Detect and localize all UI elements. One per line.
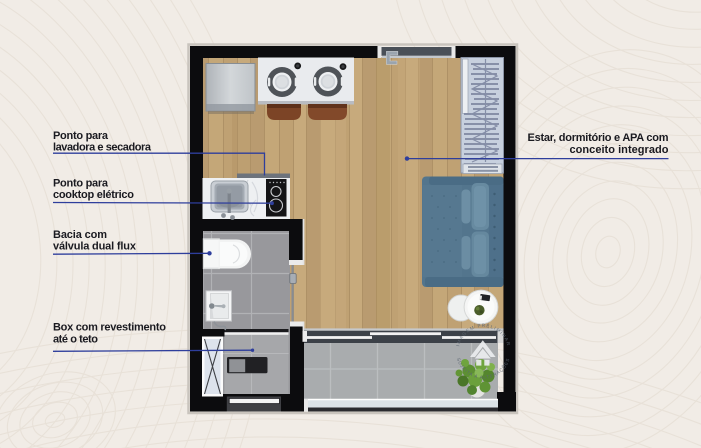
svg-text:Estar, dormitório e APA com: Estar, dormitório e APA com xyxy=(528,132,669,144)
svg-text:lavadora e secadora: lavadora e secadora xyxy=(53,141,152,153)
svg-text:Bacia com: Bacia com xyxy=(53,229,107,241)
svg-text:Ponto para: Ponto para xyxy=(53,178,109,190)
svg-text:cooktop elétrico: cooktop elétrico xyxy=(53,189,134,201)
svg-text:Box com revestimento: Box com revestimento xyxy=(53,322,166,334)
svg-text:até o teto: até o teto xyxy=(53,334,98,346)
svg-text:Ponto para: Ponto para xyxy=(53,130,109,142)
svg-text:válvula dual flux: válvula dual flux xyxy=(53,241,137,253)
svg-text:conceito integrado: conceito integrado xyxy=(570,144,669,156)
